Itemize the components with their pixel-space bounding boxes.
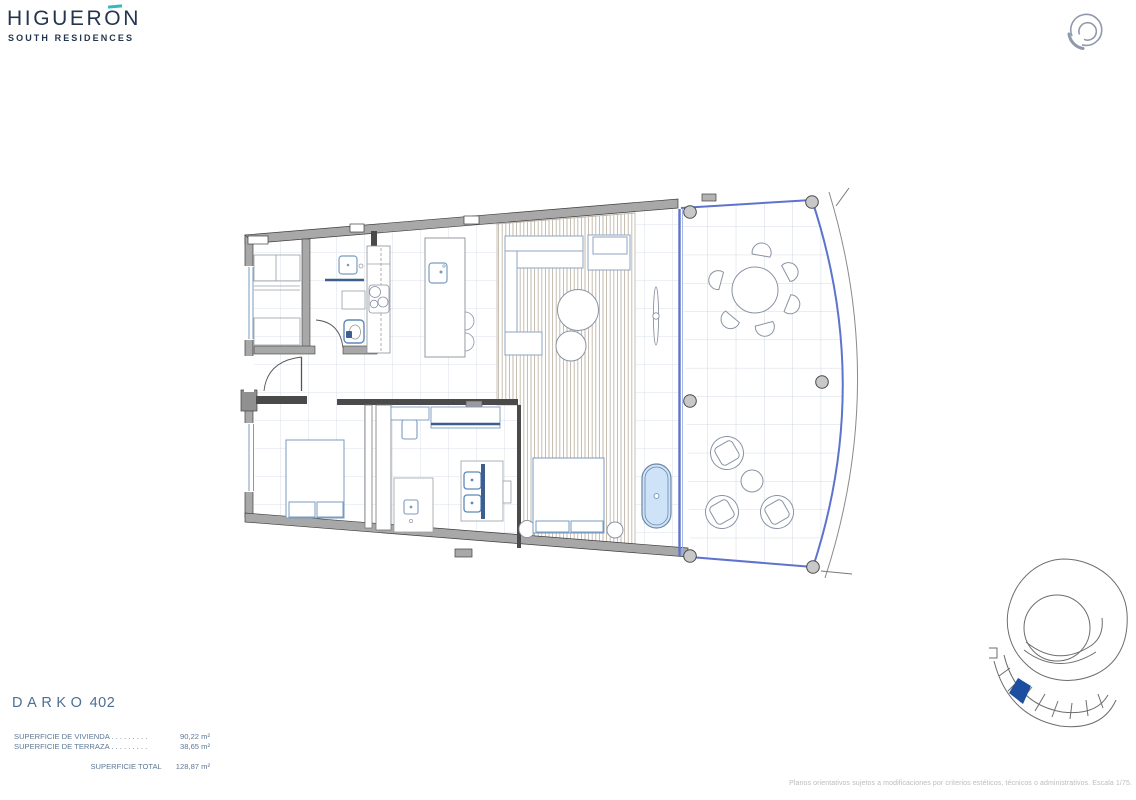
highlighted-unit	[1009, 678, 1031, 704]
bathtub	[642, 464, 671, 528]
area-label: SUPERFICIE DE VIVIENDA	[14, 732, 109, 741]
area-label: SUPERFICIE DE TERRAZA	[14, 742, 109, 751]
coffee-table	[558, 290, 599, 331]
glass-wall	[680, 209, 683, 556]
wall-notch-2	[464, 216, 479, 224]
total-label: SUPERFICIE TOTAL	[90, 762, 161, 771]
brand-name: HIGUERON	[7, 8, 227, 30]
disclaimer-text: Planos orientativos sujetos a modificaci…	[789, 780, 1132, 787]
brand-tagline: SOUTH RESIDENCES	[8, 33, 227, 43]
stool	[402, 420, 417, 439]
bedroom-1	[286, 440, 344, 518]
wardrobe	[376, 405, 391, 530]
wall-tab-terrace	[702, 194, 716, 201]
island-sink	[429, 263, 447, 283]
spiral-logo-icon	[1058, 4, 1114, 60]
area-value: 38,65 m²	[180, 742, 210, 751]
windows	[244, 266, 255, 492]
brochure-page: { "brand": { "name": "HIGUERON", "taglin…	[0, 0, 1136, 800]
area-row-terraza: SUPERFICIE DE TERRAZA . . . . . . . . . …	[14, 742, 210, 752]
area-row-vivienda: SUPERFICIE DE VIVIENDA . . . . . . . . .…	[14, 732, 210, 742]
kitchen-island	[425, 238, 465, 357]
wall-notch-top-left	[248, 236, 268, 244]
leader-dots: . . . . . . . . .	[109, 732, 147, 741]
unit-number: 402	[90, 695, 116, 711]
entrance-block	[241, 390, 257, 411]
entrance-opening	[244, 356, 254, 392]
area-row-total: SUPERFICIE TOTAL128,87 m²	[14, 762, 210, 771]
coffee-table	[556, 331, 586, 361]
dining-table	[732, 267, 778, 313]
bedside-table	[607, 522, 623, 538]
brand-logo: HIGUERON SOUTH RESIDENCES	[7, 8, 227, 43]
shower-tray	[342, 291, 365, 309]
closet	[391, 407, 429, 420]
side-table	[741, 470, 763, 492]
leader-dots: . . . . . . . . .	[109, 742, 147, 751]
unit-title: DARKO402	[12, 695, 115, 711]
wall-notch-1	[350, 224, 364, 232]
floorplan-drawing	[0, 0, 1136, 800]
area-value: 90,22 m²	[180, 732, 210, 741]
unit-name: DARKO	[12, 695, 87, 711]
total-value: 128,87 m²	[176, 762, 210, 771]
building-location-inset	[989, 559, 1127, 727]
wall-tab-bottom	[455, 549, 472, 557]
